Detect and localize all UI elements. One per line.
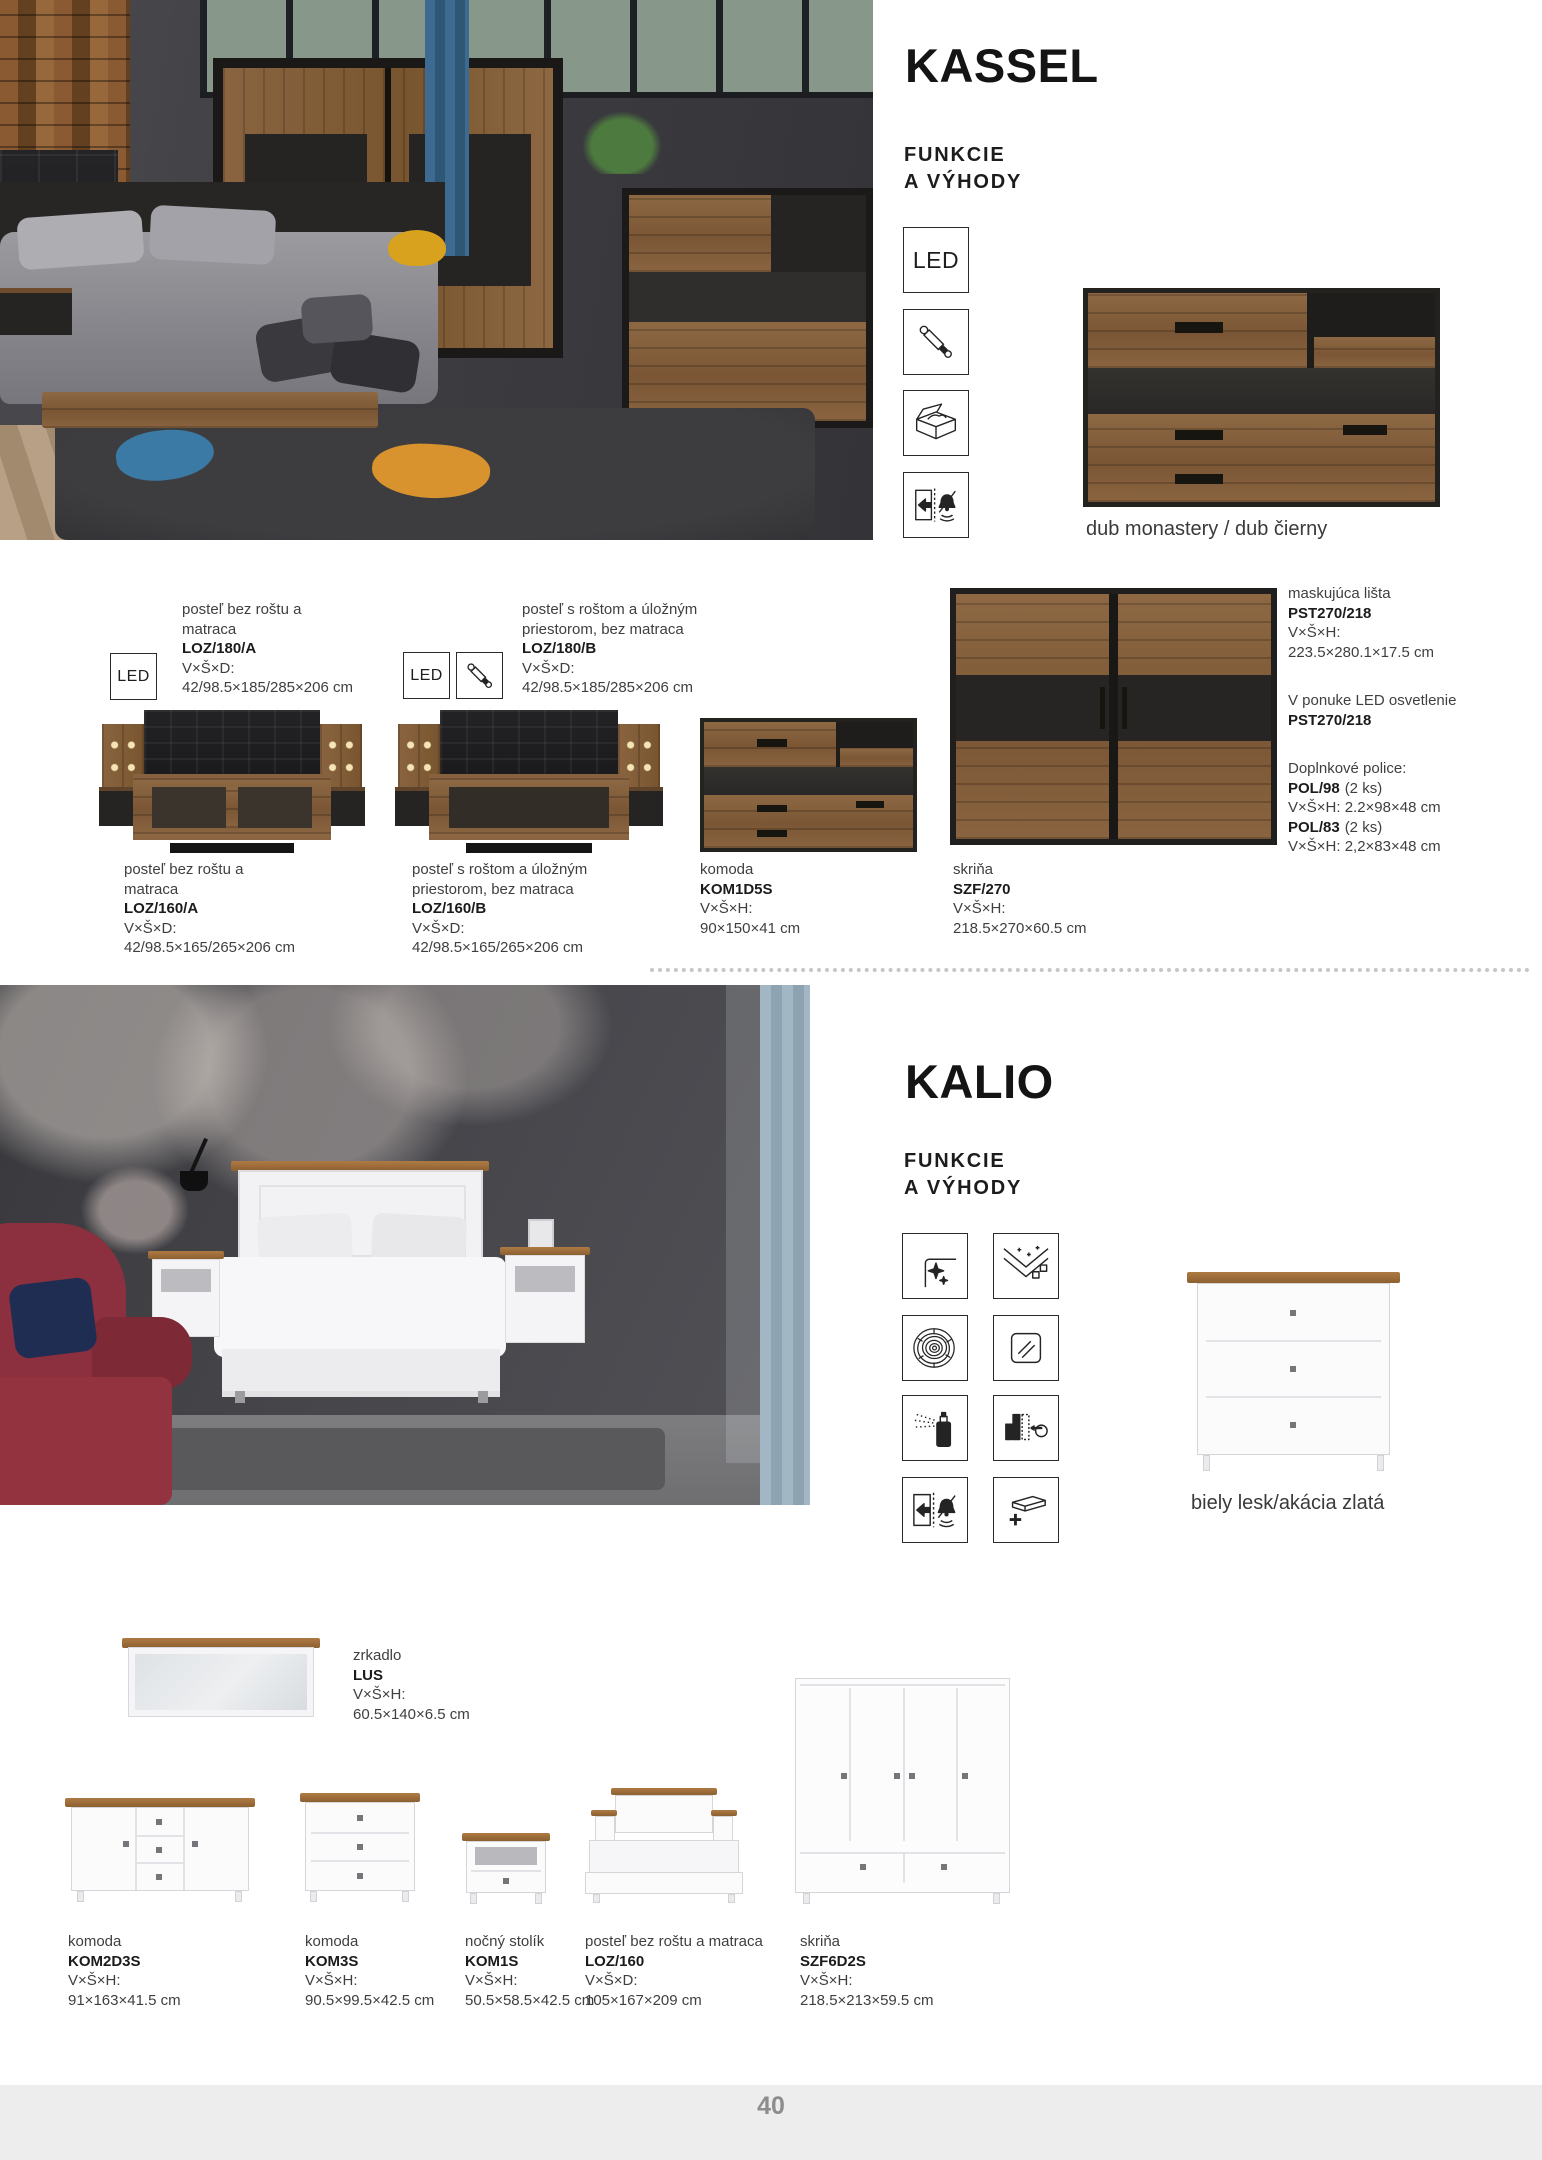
gloss-surface-icon: [902, 1233, 968, 1299]
shelf-code: POL/83: [1288, 819, 1340, 836]
product-caption-kom3s: komoda KOM3S V×Š×H: 90.5×99.5×42.5 cm: [305, 1932, 465, 2010]
product-name: posteľ s roštom a úložným priestorom, be…: [412, 860, 617, 899]
product-image-kom1s: [462, 1833, 550, 1905]
product-code: SZF/270: [953, 880, 1143, 900]
photo-nightstand-right: [505, 1255, 585, 1343]
product-dims-label: V×Š×D:: [124, 919, 296, 939]
product-dims: 91×163×41.5 cm: [68, 1991, 238, 2011]
product-image-kom3s: [300, 1793, 420, 1905]
photo-rug: [150, 1428, 665, 1490]
product-code: LOZ/160: [585, 1952, 800, 1972]
product-dims: 42/98.5×165/265×206 cm: [412, 938, 617, 958]
product-code: LOZ/180/A: [182, 639, 350, 659]
product-image-szf6d2s: [795, 1678, 1010, 1905]
product-name: komoda: [68, 1932, 238, 1952]
photo-flower-decal: [330, 985, 610, 1125]
kalio-title: KALIO: [905, 1054, 1054, 1109]
product-code: KOM1S: [465, 1952, 605, 1972]
extra-code: PST270/218: [1288, 711, 1538, 731]
photo-duvet: [214, 1257, 506, 1357]
product-dims-label: V×Š×D:: [585, 1971, 800, 1991]
extra-dims-label: V×Š×H:: [1288, 623, 1538, 643]
product-caption-kom1d5s: komoda KOM1D5S V×Š×H: 90×150×41 cm: [700, 860, 870, 938]
product-dims: 50.5×58.5×42.5 cm: [465, 1991, 605, 2011]
product-name: posteľ bez roštu a matraca: [585, 1932, 800, 1952]
kalio-swatch-image: [1187, 1272, 1400, 1478]
product-caption-loz160: posteľ bez roštu a matraca LOZ/160 V×Š×D…: [585, 1932, 800, 2010]
product-name: posteľ bez roštu a matraca: [124, 860, 296, 899]
product-code: KOM1D5S: [700, 880, 870, 900]
modular-choice-icon: [993, 1395, 1059, 1461]
storage-box-icon: [903, 390, 969, 456]
section-divider: [650, 968, 1530, 972]
product-dims: 218.5×213×59.5 cm: [800, 1991, 980, 2011]
photo-bed-base: [222, 1349, 500, 1397]
product-name: zrkadlo: [353, 1646, 523, 1666]
photo-curtain-sheer: [726, 985, 760, 1463]
wood-grain-icon: [902, 1315, 968, 1381]
product-dims-label: V×Š×D:: [412, 919, 617, 939]
spray-lacquer-icon: [902, 1395, 968, 1461]
product-code: LOZ/160/B: [412, 899, 617, 919]
product-code: LOZ/180/B: [522, 639, 727, 659]
product-dims: 42/98.5×165/265×206 cm: [124, 938, 296, 958]
product-code: KOM2D3S: [68, 1952, 238, 1972]
product-dims-label: V×Š×D:: [522, 659, 727, 679]
shelf-code: POL/98: [1288, 780, 1340, 797]
photo-pouf: [388, 230, 446, 266]
shelf-dims: V×Š×H: 2.2×98×48 cm: [1288, 798, 1538, 818]
product-caption-loz180b: posteľ s roštom a úložným priestorom, be…: [522, 600, 727, 698]
product-code: LOZ/160/A: [124, 899, 296, 919]
product-dims-label: V×Š×H:: [700, 899, 870, 919]
soft-close-icon: [903, 472, 969, 538]
product-dims-label: V×Š×H:: [465, 1971, 605, 1991]
gas-lift-badge-icon: [456, 652, 503, 699]
extra-shelves: Doplnkové police: POL/98(2 ks) V×Š×H: 2.…: [1288, 759, 1538, 857]
product-dims: 218.5×270×60.5 cm: [953, 919, 1143, 939]
product-dims-label: V×Š×H:: [68, 1971, 238, 1991]
photo-bed-frame: [42, 392, 378, 428]
product-dims: 42/98.5×185/285×206 cm: [182, 678, 350, 698]
shelf-dims: V×Š×H: 2,2×83×48 cm: [1288, 837, 1538, 857]
product-caption-lus: zrkadlo LUS V×Š×H: 60.5×140×6.5 cm: [353, 1646, 523, 1724]
product-caption-loz180a: posteľ bez roštu a matraca LOZ/180/A V×Š…: [182, 600, 350, 698]
led-badge: LED: [110, 653, 157, 700]
product-name: komoda: [305, 1932, 465, 1952]
soft-close-icon: [902, 1477, 968, 1543]
product-name: posteľ bez roštu a matraca: [182, 600, 350, 639]
extra-led-offer: V ponuke LED osvetlenie PST270/218: [1288, 691, 1538, 730]
product-code: SZF6D2S: [800, 1952, 980, 1972]
photo-nightstand: [0, 288, 72, 335]
kassel-swatch-image: [1083, 288, 1440, 507]
product-dims: 105×167×209 cm: [585, 1991, 800, 2011]
product-image-kom2d3s: [65, 1798, 255, 1905]
product-caption-szf6d2s: skriňa SZF6D2S V×Š×H: 218.5×213×59.5 cm: [800, 1932, 980, 2010]
extras-column: maskujúca lišta PST270/218 V×Š×H: 223.5×…: [1288, 584, 1538, 857]
extra-code: PST270/218: [1288, 604, 1538, 624]
kassel-features-heading: FUNKCIE A VÝHODY: [904, 142, 1022, 196]
kassel-title: KASSEL: [905, 38, 1099, 93]
kassel-room-photo: [0, 0, 873, 540]
product-caption-szf270: skriňa SZF/270 V×Š×H: 218.5×270×60.5 cm: [953, 860, 1143, 938]
extra-dims: 223.5×280.1×17.5 cm: [1288, 643, 1538, 663]
photo-plant: [583, 112, 661, 174]
kalio-features-heading: FUNKCIE A VÝHODY: [904, 1148, 1022, 1202]
product-dims: 60.5×140×6.5 cm: [353, 1705, 523, 1725]
glass-icon: [993, 1315, 1059, 1381]
page-number: 40: [0, 2092, 1542, 2121]
decor-surface-icon: [993, 1233, 1059, 1299]
extra-name: maskujúca lišta: [1288, 584, 1538, 604]
product-caption-kom2d3s: komoda KOM2D3S V×Š×H: 91×163×41.5 cm: [68, 1932, 238, 2010]
led-badge: LED: [403, 652, 450, 699]
product-name: komoda: [700, 860, 870, 880]
kalio-room-photo: [0, 985, 810, 1505]
kassel-swatch-caption: dub monastery / dub čierny: [1086, 518, 1327, 541]
photo-sideboard: [622, 188, 873, 428]
shelves-heading: Doplnkové police:: [1288, 759, 1538, 779]
product-code: KOM3S: [305, 1952, 465, 1972]
product-dims: 42/98.5×185/285×206 cm: [522, 678, 727, 698]
product-image-loz160a: [102, 710, 362, 853]
product-dims-label: V×Š×D:: [182, 659, 350, 679]
product-name: nočný stolík: [465, 1932, 605, 1952]
product-name: skriňa: [953, 860, 1143, 880]
shelf-qty: (2 ks): [1345, 780, 1383, 797]
gas-lift-icon: [903, 309, 969, 375]
photo-pillow-navy: [8, 1276, 98, 1359]
product-image-szf270: [950, 588, 1277, 845]
extra-name: V ponuke LED osvetlenie: [1288, 691, 1538, 711]
product-name: skriňa: [800, 1932, 980, 1952]
extra-shelf-icon: [993, 1477, 1059, 1543]
led-icon: LED: [903, 227, 969, 293]
product-dims-label: V×Š×H:: [800, 1971, 980, 1991]
photo-curtain: [760, 985, 810, 1505]
extra-masking-strip: maskujúca lišta PST270/218 V×Š×H: 223.5×…: [1288, 584, 1538, 662]
kalio-swatch-caption: biely lesk/akácia zlatá: [1191, 1492, 1384, 1515]
product-code: LUS: [353, 1666, 523, 1686]
photo-armchair-seat: [0, 1377, 172, 1505]
product-dims: 90.5×99.5×42.5 cm: [305, 1991, 465, 2011]
product-image-kom1d5s: [700, 718, 917, 852]
product-caption-kom1s: nočný stolík KOM1S V×Š×H: 50.5×58.5×42.5…: [465, 1932, 605, 2010]
product-dims-label: V×Š×H:: [305, 1971, 465, 1991]
product-caption-loz160a: posteľ bez roštu a matraca LOZ/160/A V×Š…: [124, 860, 296, 958]
product-caption-loz160b: posteľ s roštom a úložným priestorom, be…: [412, 860, 617, 958]
product-dims-label: V×Š×H:: [953, 899, 1143, 919]
product-image-loz160: [583, 1788, 745, 1905]
product-image-loz160b: [398, 710, 660, 853]
product-dims: 90×150×41 cm: [700, 919, 870, 939]
product-image-lus: [122, 1638, 320, 1720]
product-name: posteľ s roštom a úložným priestorom, be…: [522, 600, 727, 639]
shelf-qty: (2 ks): [1345, 819, 1383, 836]
product-dims-label: V×Š×H:: [353, 1685, 523, 1705]
